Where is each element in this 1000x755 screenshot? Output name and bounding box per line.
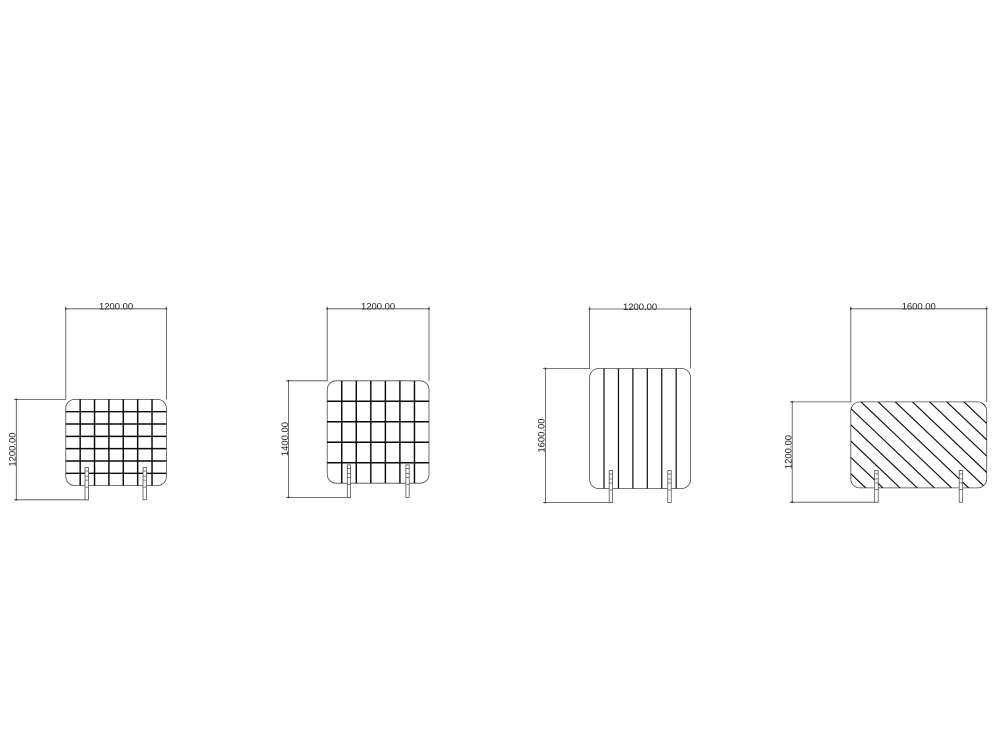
svg-text:1600.00: 1600.00	[537, 418, 548, 452]
svg-text:1200.00: 1200.00	[623, 302, 657, 313]
svg-text:1600.00: 1600.00	[902, 302, 936, 313]
svg-text:1200.00: 1200.00	[99, 302, 133, 313]
svg-text:1200.00: 1200.00	[784, 435, 795, 469]
svg-text:1200.00: 1200.00	[361, 302, 395, 313]
svg-text:1200.00: 1200.00	[8, 433, 19, 467]
svg-text:1400.00: 1400.00	[280, 422, 291, 456]
